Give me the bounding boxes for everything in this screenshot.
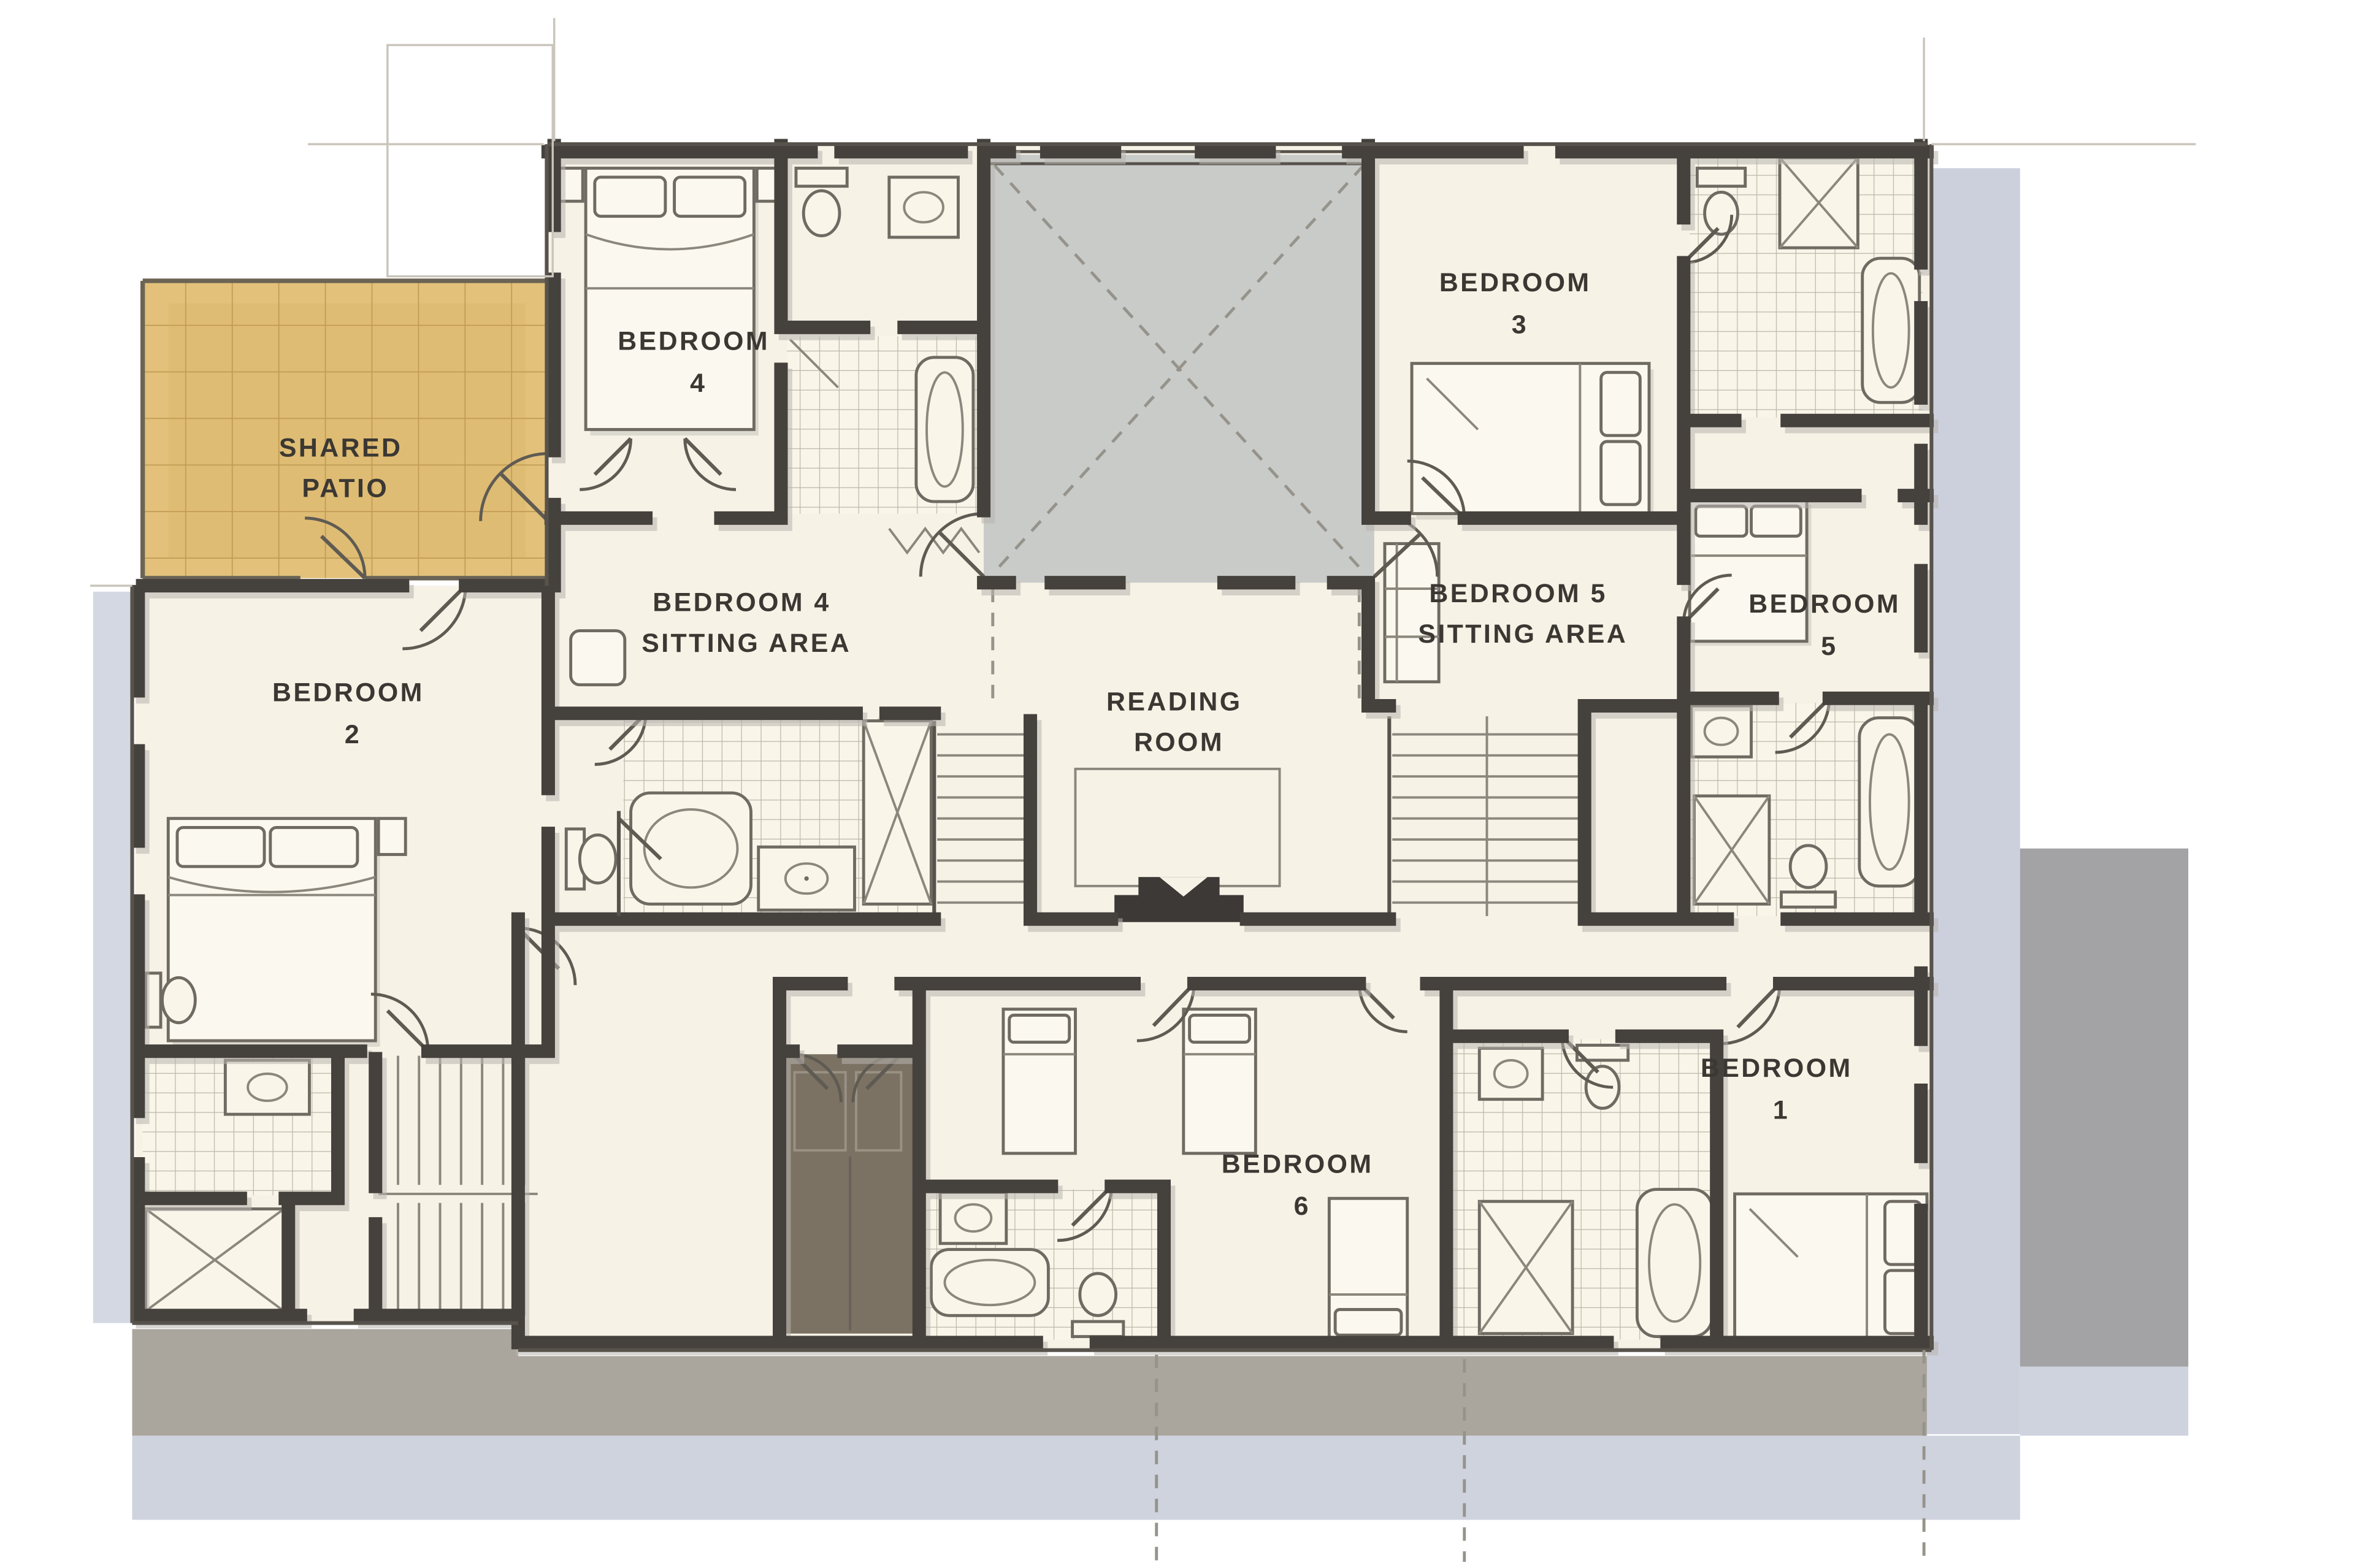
stair-main [1389, 716, 1581, 916]
pillow [1190, 1015, 1250, 1042]
shadow-right-band [1927, 168, 2020, 1434]
bed-bedroom2 [168, 819, 405, 1047]
bed-bedroom1 [1735, 1194, 1932, 1344]
pillow [1335, 1310, 1401, 1336]
floor-plan-page: SHARED PATIO BEDROOM 2 BEDROOM 4 BEDROOM… [0, 0, 2355, 1568]
shadow-right-bottom [2020, 1367, 2188, 1436]
pillow [1601, 442, 1641, 505]
walk-in-closet-dark [783, 1054, 916, 1334]
sofa-bedroom5-sitting [1385, 544, 1439, 682]
armchair-sitting-area [571, 631, 625, 685]
bed-bedroom4 [559, 168, 781, 435]
pillow [675, 177, 745, 216]
pillow [1009, 1015, 1070, 1042]
pillow [1696, 506, 1747, 536]
shadow-left-band [93, 592, 132, 1323]
bed-bedroom5 [1690, 500, 1811, 646]
terrace-block-right [2020, 849, 2188, 1367]
pillow [177, 828, 264, 867]
stair-back [934, 721, 1027, 916]
pillow [270, 828, 358, 867]
chimney-outline [388, 45, 553, 277]
pillow [1601, 372, 1641, 435]
pillow [595, 177, 665, 216]
pillow [1752, 506, 1801, 536]
bed-bedroom3 [1412, 364, 1653, 520]
nightstand [378, 819, 405, 855]
floor-plan-drawing: SHARED PATIO BEDROOM 2 BEDROOM 4 BEDROOM… [0, 0, 2355, 1568]
shadow-bottom-band [132, 1436, 2020, 1520]
